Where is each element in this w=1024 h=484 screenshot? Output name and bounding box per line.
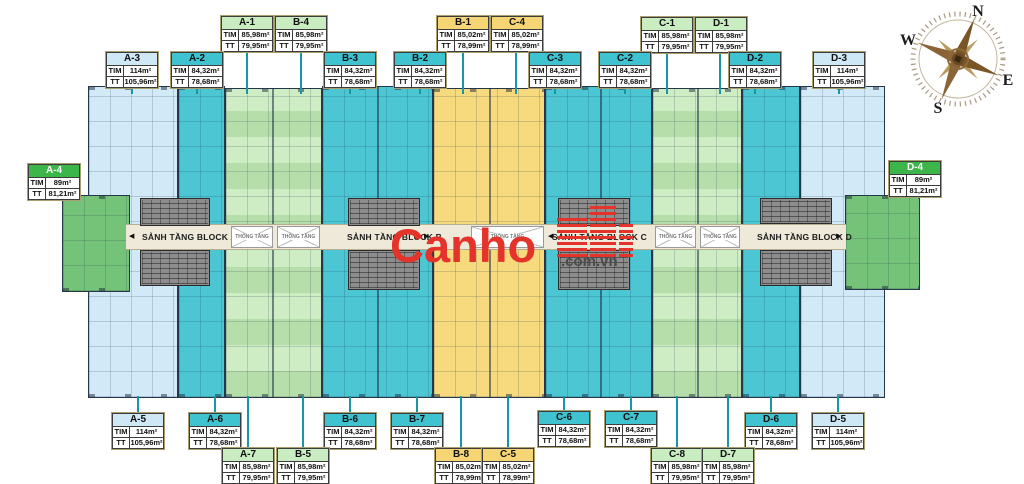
tt-key: TT [436, 473, 453, 483]
connector-a1 [246, 47, 248, 94]
unit-name: C-7 [605, 411, 657, 425]
floor-plan-page: SẢNH TẦNG BLOCK A SẢNH TẦNG BLOCK B SẢNH… [0, 0, 1024, 484]
tim-key: TIM [642, 31, 659, 41]
elevator-core-d [760, 198, 832, 224]
tt-key: TT [29, 189, 46, 199]
unit-label-a7: A-7 TIM85,98m² TT79,95m² [221, 447, 275, 484]
unit-label-b7: B-7 TIM84,32m² TT78,68m² [390, 412, 444, 450]
watermark-suffix: .com.vn [561, 253, 618, 270]
unit-name: A-7 [222, 448, 274, 462]
tim-value: 85,98m² [295, 462, 328, 472]
tim-key: TIM [222, 30, 239, 40]
tim-key: TIM [703, 462, 720, 472]
corridor-label-block-a: SẢNH TẦNG BLOCK A [142, 232, 237, 242]
tt-value: 78,68m² [747, 77, 780, 87]
corridor-arrow-left-icon: ◀ [548, 233, 553, 240]
tt-value: 79,95m² [240, 473, 273, 483]
watermark-building-icon [557, 203, 633, 259]
unit-label-b8: B-8 TIM85,02m² TT78,99m² [434, 447, 488, 484]
connector-c5 [507, 396, 509, 448]
unit-name: D-5 [812, 413, 864, 427]
tim-value: 85,02m² [500, 462, 533, 472]
unit-area-d4 [845, 195, 920, 290]
connector-b1 [462, 47, 464, 94]
tim-value: 84,32m² [617, 66, 650, 76]
unit-label-d7: D-7 TIM85,98m² TT79,95m² [701, 447, 755, 484]
tim-value: 84,32m² [556, 425, 589, 435]
tt-key: TT [890, 186, 907, 196]
tim-key: TIM [539, 425, 556, 435]
tt-value: 78,68m² [623, 436, 656, 446]
unit-label-c1: C-1 TIM85,98m² TT79,95m² [640, 16, 694, 54]
tt-key: TT [325, 77, 342, 87]
unit-name: A-2 [171, 52, 223, 66]
tim-value: 85,98m² [659, 31, 692, 41]
tt-value: 78,68m² [547, 77, 580, 87]
tt-key: TT [276, 41, 293, 51]
tim-key: TIM [325, 427, 342, 437]
tt-key: TT [483, 473, 500, 483]
unit-label-d6: D-6 TIM84,32m² TT78,68m² [744, 412, 798, 450]
unit-name: D-6 [745, 413, 797, 427]
tt-key: TT [107, 77, 124, 87]
unit-label-d5: D-5 TIM114m² TT105,96m² [811, 412, 865, 450]
tim-value: 85,98m² [669, 462, 702, 472]
unit-name: C-8 [651, 448, 703, 462]
watermark-brand: Canho [390, 222, 536, 269]
tim-value: 114m² [830, 427, 863, 437]
tt-key: TT [814, 77, 831, 87]
connector-b4 [300, 47, 302, 94]
tt-value: 78,99m² [500, 473, 533, 483]
tt-key: TT [652, 473, 669, 483]
tim-value: 85,98m² [293, 30, 326, 40]
tim-value: 84,32m² [207, 427, 240, 437]
tt-key: TT [730, 77, 747, 87]
connector-b8 [460, 396, 462, 448]
connector-c4 [515, 47, 517, 94]
tim-key: TIM [223, 462, 240, 472]
tim-value: 84,32m² [412, 66, 445, 76]
tt-value: 78,68m² [617, 77, 650, 87]
compass-rose-icon: N E S W [891, 1, 1024, 117]
tim-key: TIM [29, 178, 46, 188]
tim-key: TIM [814, 66, 831, 76]
tt-key: TT [113, 438, 130, 448]
connector-d6 [770, 396, 772, 413]
tt-value: 105,96m² [830, 438, 863, 448]
connector-a5 [137, 396, 139, 413]
tim-value: 84,32m² [623, 425, 656, 435]
unit-label-c2: C-2 TIM84,32m² TT78,68m² [598, 51, 652, 89]
tt-key: TT [223, 473, 240, 483]
tt-key: TT [222, 41, 239, 51]
unit-name: D-1 [695, 17, 747, 31]
tt-key: TT [600, 77, 617, 87]
unit-label-a2: A-2 TIM84,32m² TT78,68m² [170, 51, 224, 89]
unit-name: B-7 [391, 413, 443, 427]
tim-value: 89m² [46, 178, 79, 188]
tt-key: TT [172, 77, 189, 87]
tt-key: TT [492, 41, 509, 51]
unit-label-a1: A-1 TIM85,98m² TT79,95m² [220, 15, 274, 53]
unit-name: B-6 [324, 413, 376, 427]
unit-name: C-1 [641, 17, 693, 31]
unit-label-b3: B-3 TIM84,32m² TT78,68m² [323, 51, 377, 89]
void-box: THÔNG TẦNG [700, 226, 740, 248]
tim-value: 85,02m² [455, 30, 488, 40]
tim-value: 114m² [831, 66, 864, 76]
unit-name: A-1 [221, 16, 273, 30]
unit-name: B-1 [437, 16, 489, 30]
tim-key: TIM [107, 66, 124, 76]
unit-label-b2: B-2 TIM84,32m² TT78,68m² [393, 51, 447, 89]
tt-value: 79,95m² [295, 473, 328, 483]
tt-value: 79,95m² [720, 473, 753, 483]
tt-value: 79,95m² [669, 473, 702, 483]
tim-key: TIM [606, 425, 623, 435]
unit-label-b4: B-4 TIM85,98m² TT79,95m² [274, 15, 328, 53]
unit-name: A-3 [106, 52, 158, 66]
connector-d7 [727, 396, 729, 448]
tt-value: 79,95m² [293, 41, 326, 51]
connector-d5 [837, 396, 839, 413]
tim-key: TIM [276, 30, 293, 40]
tt-value: 78,99m² [509, 41, 542, 51]
unit-name: D-7 [702, 448, 754, 462]
unit-name: C-4 [491, 16, 543, 30]
tim-value: 84,32m² [547, 66, 580, 76]
tt-key: TT [392, 438, 409, 448]
unit-label-d3: D-3 TIM114m² TT105,96m² [812, 51, 866, 89]
unit-label-a4: A-4 TIM89m² TT81,21m² [27, 163, 81, 201]
connector-c7 [630, 396, 632, 411]
tim-key: TIM [813, 427, 830, 437]
tim-value: 85,98m² [240, 462, 273, 472]
tim-key: TIM [278, 462, 295, 472]
tt-key: TT [539, 436, 556, 446]
unit-name: B-3 [324, 52, 376, 66]
unit-label-a5: A-5 TIM114m² TT105,96m² [111, 412, 165, 450]
compass-s: S [934, 100, 943, 117]
tim-value: 84,32m² [747, 66, 780, 76]
unit-label-d2: D-2 TIM84,32m² TT78,68m² [728, 51, 782, 89]
unit-label-b6: B-6 TIM84,32m² TT78,68m² [323, 412, 377, 450]
tim-key: TIM [438, 30, 455, 40]
compass-e: E [1003, 72, 1014, 89]
unit-area-a4 [62, 195, 130, 292]
tim-value: 84,32m² [409, 427, 442, 437]
tt-value: 79,95m² [239, 41, 272, 51]
connector-a6 [214, 396, 216, 413]
void-box: THÔNG TẦNG [655, 226, 696, 248]
tim-key: TIM [652, 462, 669, 472]
unit-name: B-4 [275, 16, 327, 30]
tt-value: 105,96m² [124, 77, 157, 87]
unit-name: D-3 [813, 52, 865, 66]
elevator-core-a [140, 198, 210, 226]
unit-label-b1: B-1 TIM85,02m² TT78,99m² [436, 15, 490, 53]
tt-value: 78,68m² [342, 77, 375, 87]
tim-key: TIM [190, 427, 207, 437]
tt-key: TT [813, 438, 830, 448]
tim-value: 85,98m² [713, 31, 746, 41]
unit-label-c6: C-6 TIM84,32m² TT78,68m² [537, 410, 591, 448]
tim-key: TIM [492, 30, 509, 40]
tt-key: TT [278, 473, 295, 483]
unit-name: C-2 [599, 52, 651, 66]
tim-value: 84,32m² [342, 427, 375, 437]
tt-key: TT [190, 438, 207, 448]
void-box: THÔNG TẦNG [277, 226, 320, 248]
unit-name: D-2 [729, 52, 781, 66]
tim-key: TIM [395, 66, 412, 76]
connector-b5 [302, 396, 304, 448]
tim-value: 85,02m² [509, 30, 542, 40]
tt-value: 81,21m² [46, 189, 79, 199]
unit-label-c3: C-3 TIM84,32m² TT78,68m² [528, 51, 582, 89]
void-label: THÔNG TẦNG [658, 234, 694, 240]
tim-key: TIM [392, 427, 409, 437]
connector-b6 [349, 396, 351, 413]
tim-value: 84,32m² [763, 427, 796, 437]
unit-name: B-8 [435, 448, 487, 462]
stair-core-a [140, 250, 210, 286]
tim-key: TIM [530, 66, 547, 76]
unit-label-a6: A-6 TIM84,32m² TT78,68m² [188, 412, 242, 450]
connector-c6 [563, 396, 565, 411]
tim-key: TIM [746, 427, 763, 437]
unit-label-b5: B-5 TIM85,98m² TT79,95m² [276, 447, 330, 484]
unit-name: A-4 [28, 164, 80, 178]
tt-value: 78,68m² [763, 438, 796, 448]
tt-key: TT [438, 41, 455, 51]
tim-key: TIM [436, 462, 453, 472]
unit-label-c5: C-5 TIM85,02m² TT78,99m² [481, 447, 535, 484]
tt-value: 78,68m² [556, 436, 589, 446]
unit-label-c7: C-7 TIM84,32m² TT78,68m² [604, 410, 658, 448]
tim-value: 84,32m² [189, 66, 222, 76]
tt-key: TT [606, 436, 623, 446]
tim-key: TIM [172, 66, 189, 76]
tt-key: TT [696, 42, 713, 52]
tim-key: TIM [600, 66, 617, 76]
tim-key: TIM [113, 427, 130, 437]
corridor-arrow-right-icon: ▶ [836, 233, 841, 240]
connector-c8 [676, 396, 678, 448]
unit-label-c8: C-8 TIM85,98m² TT79,95m² [650, 447, 704, 484]
tim-key: TIM [890, 175, 907, 185]
connector-a7 [247, 396, 249, 448]
tim-key: TIM [696, 31, 713, 41]
unit-label-c4: C-4 TIM85,02m² TT78,99m² [490, 15, 544, 53]
unit-name: A-5 [112, 413, 164, 427]
corridor-arrow-left-icon: ◀ [129, 233, 134, 240]
tt-value: 78,68m² [189, 77, 222, 87]
tim-value: 84,32m² [342, 66, 375, 76]
connector-d1 [719, 48, 721, 94]
unit-label-a3: A-3 TIM114m² TT105,96m² [105, 51, 159, 89]
tim-key: TIM [483, 462, 500, 472]
tim-value: 85,98m² [720, 462, 753, 472]
tt-value: 81,21m² [907, 186, 940, 196]
tim-value: 89m² [907, 175, 940, 185]
tt-value: 78,68m² [412, 77, 445, 87]
tim-value: 114m² [124, 66, 157, 76]
tt-value: 78,99m² [455, 41, 488, 51]
unit-name: B-2 [394, 52, 446, 66]
tt-value: 105,96m² [831, 77, 864, 87]
unit-label-d4: D-4 TIM89m² TT81,21m² [888, 160, 942, 198]
connector-c1 [666, 48, 668, 94]
unit-name: C-3 [529, 52, 581, 66]
tt-value: 79,95m² [659, 42, 692, 52]
tt-key: TT [530, 77, 547, 87]
tt-value: 105,96m² [130, 438, 163, 448]
unit-name: C-6 [538, 411, 590, 425]
tt-key: TT [703, 473, 720, 483]
void-label: THÔNG TẦNG [702, 234, 738, 240]
compass-n: N [972, 3, 984, 20]
void-label: THÔNG TẦNG [281, 234, 317, 240]
connector-b7 [416, 396, 418, 413]
unit-name: A-6 [189, 413, 241, 427]
void-box: THÔNG TẦNG [231, 226, 273, 248]
unit-name: B-5 [277, 448, 329, 462]
tim-key: TIM [730, 66, 747, 76]
unit-name: C-5 [482, 448, 534, 462]
void-label: THÔNG TẦNG [234, 234, 270, 240]
tim-key: TIM [325, 66, 342, 76]
stair-core-d [760, 250, 832, 286]
unit-name: D-4 [889, 161, 941, 175]
tt-value: 78,68m² [342, 438, 375, 448]
tim-value: 85,98m² [239, 30, 272, 40]
compass-w: W [900, 32, 916, 49]
unit-label-d1: D-1 TIM85,98m² TT79,95m² [694, 16, 748, 54]
tt-key: TT [395, 77, 412, 87]
tim-value: 114m² [130, 427, 163, 437]
